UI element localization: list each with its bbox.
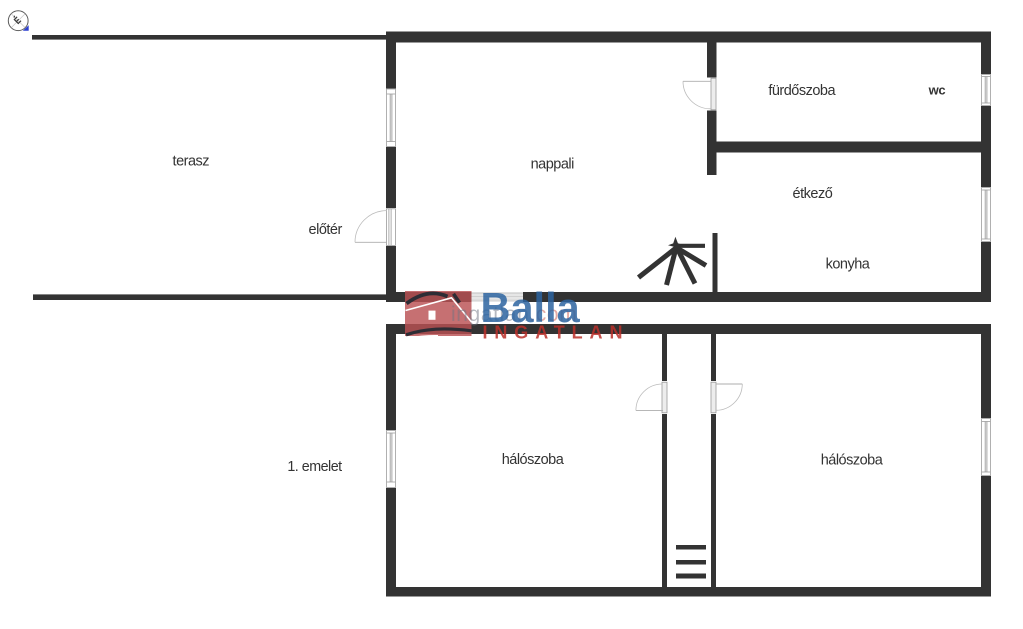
svg-text:hálószoba: hálószoba (821, 453, 884, 469)
svg-text:nappali: nappali (531, 156, 575, 172)
svg-text:INGATLAN: INGATLAN (483, 323, 630, 343)
svg-text:terasz: terasz (173, 154, 210, 170)
svg-text:előtér: előtér (309, 222, 343, 238)
svg-text:fürdőszoba: fürdőszoba (768, 83, 836, 99)
svg-text:1. emelet: 1. emelet (287, 459, 342, 475)
svg-text:konyha: konyha (826, 257, 871, 273)
svg-text:étkező: étkező (793, 186, 833, 202)
svg-text:wc: wc (928, 83, 946, 98)
svg-text:hálószoba: hálószoba (502, 452, 565, 468)
